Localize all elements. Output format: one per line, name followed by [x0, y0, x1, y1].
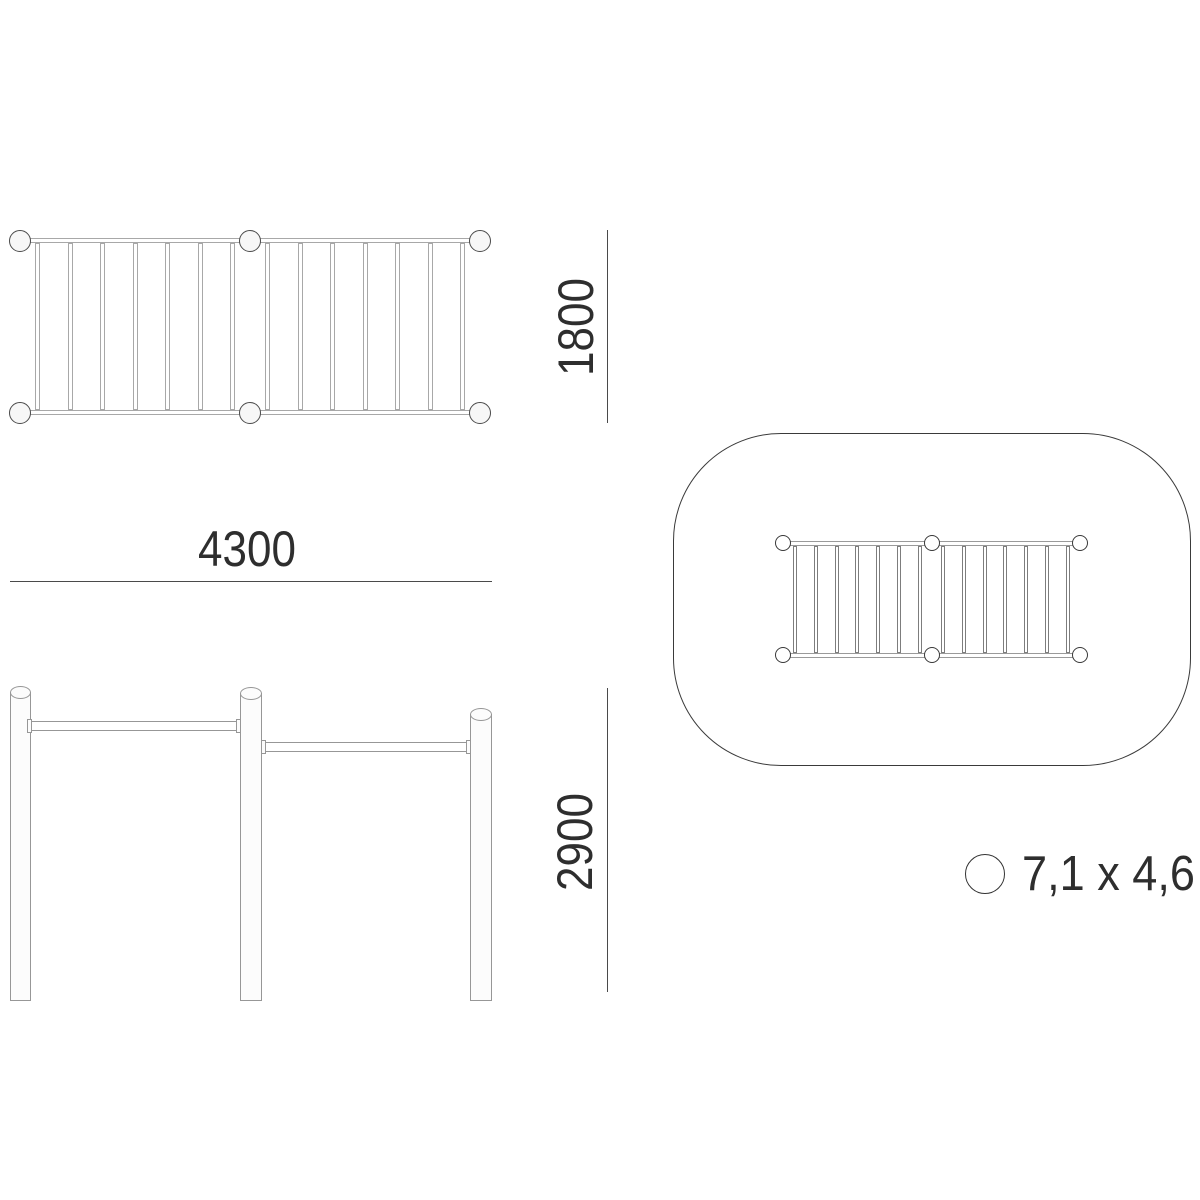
ladder-post-circle: [9, 402, 31, 424]
elevation-post-cap: [240, 687, 262, 700]
ladder-post-circle: [239, 402, 261, 424]
ladder-rung: [198, 243, 203, 410]
ladder-rung-section-left: [31, 243, 239, 410]
zone-post-circle: [1072, 535, 1088, 551]
zone-post-circle: [775, 647, 791, 663]
ladder-post-circle: [469, 230, 491, 252]
pullup-bar-high: [31, 721, 241, 731]
zone-post-circle: [775, 535, 791, 551]
ladder-post-circle: [469, 402, 491, 424]
zone-post-circle: [924, 647, 940, 663]
ladder-rung: [298, 243, 303, 410]
bar-joint: [261, 740, 266, 754]
ladder-rung: [835, 546, 839, 653]
dim-height-line: [607, 688, 608, 992]
dim-height-label: 2900: [545, 754, 605, 930]
elevation-post-left: [10, 692, 31, 1001]
elevation-post-cap: [470, 708, 492, 721]
ladder-rung: [1003, 546, 1007, 653]
zone-ladder-rung-section-right: [939, 546, 1072, 653]
pullup-bar-low: [261, 742, 471, 752]
ladder-rung: [460, 243, 465, 410]
ladder-rung: [68, 243, 73, 410]
ladder-rung: [855, 546, 859, 653]
zone-post-circle: [1072, 647, 1088, 663]
ladder-rung: [1066, 546, 1070, 653]
ladder-rung-section-right: [261, 243, 469, 410]
dim-depth-label: 1800: [546, 239, 606, 415]
ladder-rung: [814, 546, 818, 653]
zone-ladder-rung-section-left: [791, 546, 924, 653]
ladder-rung: [395, 243, 400, 410]
bar-joint: [236, 719, 241, 733]
footprint-symbol-circle: [965, 854, 1005, 894]
ladder-rung: [876, 546, 880, 653]
ladder-rung: [363, 243, 368, 410]
dim-width-label: 4300: [159, 519, 335, 579]
ladder-rung: [165, 243, 170, 410]
zone-post-circle: [924, 535, 940, 551]
technical-drawing-canvas: 1800 4300 2900 7,1: [0, 0, 1200, 1200]
dim-depth-line: [607, 230, 608, 423]
safety-zone-outline: [673, 433, 1191, 766]
ladder-rung: [962, 546, 966, 653]
ladder-rung: [983, 546, 987, 653]
ladder-rung: [1024, 546, 1028, 653]
ladder-post-circle: [239, 230, 261, 252]
ladder-rung: [941, 546, 945, 653]
ladder-rung: [265, 243, 270, 410]
ladder-rung: [35, 243, 40, 410]
ladder-rung: [793, 546, 797, 653]
ladder-post-circle: [9, 230, 31, 252]
ladder-rung: [897, 546, 901, 653]
footprint-label: 7,1 x 4,6: [1022, 844, 1195, 904]
ladder-rung: [230, 243, 235, 410]
dim-width-line: [10, 581, 492, 582]
ladder-rung: [918, 546, 922, 653]
bar-joint: [27, 719, 32, 733]
ladder-rung: [133, 243, 138, 410]
ladder-rung: [100, 243, 105, 410]
ladder-rung: [1045, 546, 1049, 653]
ladder-rung: [330, 243, 335, 410]
elevation-post-cap: [10, 686, 31, 699]
elevation-post-middle: [240, 693, 262, 1001]
elevation-post-right: [470, 714, 492, 1001]
bar-joint: [466, 740, 471, 754]
ladder-rung: [428, 243, 433, 410]
